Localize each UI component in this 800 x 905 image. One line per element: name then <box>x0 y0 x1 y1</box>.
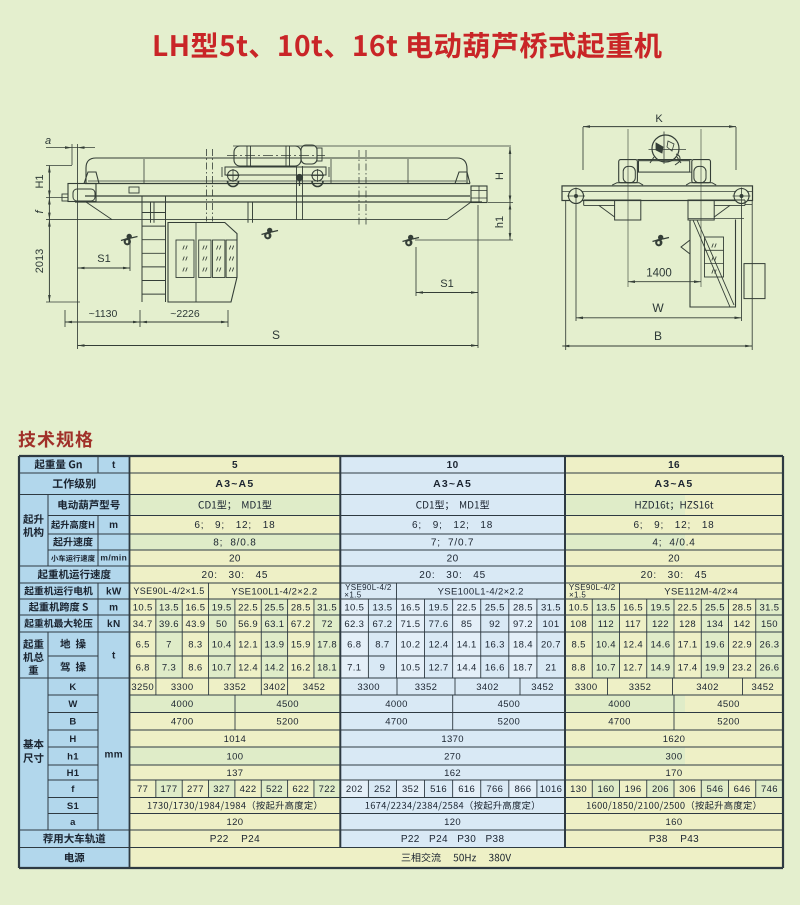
svg-text:13.9: 13.9 <box>264 639 284 650</box>
svg-text:101: 101 <box>543 619 560 630</box>
svg-text:1620: 1620 <box>663 734 686 745</box>
svg-text:t: t <box>112 651 116 662</box>
svg-text:3352: 3352 <box>629 682 652 693</box>
svg-text:20.7: 20.7 <box>541 639 561 650</box>
svg-text:67.2: 67.2 <box>372 619 392 630</box>
svg-text:W: W <box>68 699 77 710</box>
svg-text:12.4: 12.4 <box>238 662 258 673</box>
svg-text:15.9: 15.9 <box>291 639 311 650</box>
svg-text:77: 77 <box>137 784 148 795</box>
svg-text:3402: 3402 <box>696 682 719 693</box>
svg-text:12.4: 12.4 <box>623 639 643 650</box>
svg-text:26.6: 26.6 <box>759 662 779 673</box>
svg-text:766: 766 <box>486 784 503 795</box>
svg-text:3300: 3300 <box>357 682 380 693</box>
svg-text:20: 20 <box>229 554 241 565</box>
svg-text:14.9: 14.9 <box>650 662 670 673</box>
svg-text:31.5: 31.5 <box>759 602 779 613</box>
svg-text:8.6: 8.6 <box>188 662 202 673</box>
svg-text:196: 196 <box>625 784 642 795</box>
svg-text:19.9: 19.9 <box>705 662 725 673</box>
svg-text:277: 277 <box>187 784 204 795</box>
svg-text:A3~A5: A3~A5 <box>433 478 472 490</box>
svg-text:6; 9; 12; 18: 6; 9; 12; 18 <box>633 520 714 531</box>
svg-text:3452: 3452 <box>752 682 775 693</box>
svg-text:306: 306 <box>679 784 696 795</box>
svg-text:100: 100 <box>226 751 243 762</box>
svg-text:3452: 3452 <box>531 682 554 693</box>
svg-text:62.3: 62.3 <box>344 619 364 630</box>
svg-text:YSE112M-4/2×4: YSE112M-4/2×4 <box>664 586 738 597</box>
svg-text:516: 516 <box>430 784 447 795</box>
svg-text:10.7: 10.7 <box>212 662 232 673</box>
svg-text:kW: kW <box>106 587 122 598</box>
svg-text:f: f <box>71 784 75 795</box>
svg-text:4700: 4700 <box>171 717 194 728</box>
svg-text:B: B <box>69 717 76 728</box>
svg-text:142: 142 <box>734 619 751 630</box>
svg-text:5200: 5200 <box>276 717 299 728</box>
svg-text:616: 616 <box>458 784 475 795</box>
svg-text:23.2: 23.2 <box>732 662 752 673</box>
svg-text:14.2: 14.2 <box>264 662 284 673</box>
svg-text:67.2: 67.2 <box>291 619 311 630</box>
svg-text:4000: 4000 <box>608 699 631 710</box>
svg-text:10.4: 10.4 <box>596 639 616 650</box>
svg-text:646: 646 <box>734 784 751 795</box>
svg-text:10.4: 10.4 <box>212 639 232 650</box>
svg-text:72: 72 <box>321 619 332 630</box>
svg-text:8.5: 8.5 <box>571 639 585 650</box>
svg-text:17.4: 17.4 <box>678 662 698 673</box>
svg-text:YSE100L1-4/2×2.2: YSE100L1-4/2×2.2 <box>231 586 317 597</box>
svg-text:28.5: 28.5 <box>291 602 311 613</box>
svg-text:S1: S1 <box>67 801 80 812</box>
svg-text:3250: 3250 <box>131 682 154 693</box>
svg-text:a: a <box>45 135 51 147</box>
svg-text:546: 546 <box>706 784 723 795</box>
svg-text:20: 20 <box>447 554 459 565</box>
svg-text:1014: 1014 <box>224 734 247 745</box>
svg-text:4000: 4000 <box>385 699 408 710</box>
svg-text:5200: 5200 <box>717 717 740 728</box>
svg-text:3300: 3300 <box>171 682 194 693</box>
svg-text:6; 9; 12; 18: 6; 9; 12; 18 <box>194 520 275 531</box>
svg-text:3402: 3402 <box>263 682 286 693</box>
svg-text:18.1: 18.1 <box>317 662 337 673</box>
svg-text:6.5: 6.5 <box>136 639 150 650</box>
svg-text:h1: h1 <box>494 216 506 228</box>
svg-text:4500: 4500 <box>498 699 521 710</box>
svg-text:120: 120 <box>226 817 243 828</box>
svg-text:m: m <box>109 520 118 531</box>
svg-text:10: 10 <box>447 460 459 471</box>
svg-text:8; 8/0.8: 8; 8/0.8 <box>213 538 256 549</box>
svg-text:18.4: 18.4 <box>513 639 533 650</box>
svg-text:28.5: 28.5 <box>732 602 752 613</box>
svg-text:19.6: 19.6 <box>705 639 725 650</box>
svg-text:S1: S1 <box>440 278 453 290</box>
svg-text:422: 422 <box>240 784 257 795</box>
svg-text:4700: 4700 <box>608 717 631 728</box>
svg-text:H1: H1 <box>67 768 80 779</box>
svg-text:3352: 3352 <box>415 682 438 693</box>
svg-text:4000: 4000 <box>171 699 194 710</box>
svg-text:5200: 5200 <box>498 717 521 728</box>
svg-text:a: a <box>70 817 76 828</box>
svg-text:4500: 4500 <box>717 699 740 710</box>
svg-text:19.5: 19.5 <box>429 602 449 613</box>
svg-text:14.4: 14.4 <box>457 662 477 673</box>
svg-text:16.3: 16.3 <box>485 639 505 650</box>
svg-text:622: 622 <box>292 784 309 795</box>
svg-text:34.7: 34.7 <box>133 619 153 630</box>
svg-text:YSE90L-4/2×1.5: YSE90L-4/2×1.5 <box>133 586 204 596</box>
svg-text:122: 122 <box>652 619 669 630</box>
svg-text:327: 327 <box>213 784 230 795</box>
svg-text:77.6: 77.6 <box>429 619 449 630</box>
svg-text:28.5: 28.5 <box>513 602 533 613</box>
svg-text:K: K <box>69 682 76 693</box>
svg-text:×1.5: ×1.5 <box>344 590 361 599</box>
svg-text:4500: 4500 <box>276 699 299 710</box>
svg-text:YSE100L1-4/2×2.2: YSE100L1-4/2×2.2 <box>438 586 524 597</box>
svg-text:8.3: 8.3 <box>188 639 202 650</box>
svg-text:A3~A5: A3~A5 <box>655 478 694 490</box>
svg-text:160: 160 <box>597 784 614 795</box>
svg-text:63.1: 63.1 <box>264 619 284 630</box>
svg-text:7.3: 7.3 <box>162 662 176 673</box>
svg-text:16: 16 <box>668 460 680 471</box>
svg-text:P38 P43: P38 P43 <box>649 834 699 845</box>
svg-text:134: 134 <box>706 619 723 630</box>
svg-text:22.5: 22.5 <box>457 602 477 613</box>
svg-text:117: 117 <box>625 619 641 630</box>
svg-text:P22 P24 P30 P38: P22 P24 P30 P38 <box>401 834 505 845</box>
svg-text:16.5: 16.5 <box>401 602 421 613</box>
svg-text:P22 P24: P22 P24 <box>210 834 260 845</box>
svg-text:43.9: 43.9 <box>185 619 205 630</box>
svg-text:108: 108 <box>570 619 587 630</box>
svg-text:1400: 1400 <box>646 268 672 280</box>
svg-text:17.1: 17.1 <box>678 639 698 650</box>
svg-text:3452: 3452 <box>303 682 326 693</box>
svg-text:71.5: 71.5 <box>401 619 421 630</box>
svg-text:866: 866 <box>514 784 531 795</box>
svg-text:m: m <box>109 603 118 614</box>
svg-text:150: 150 <box>761 619 778 630</box>
svg-text:6; 9; 12; 18: 6; 9; 12; 18 <box>412 520 493 531</box>
svg-text:85: 85 <box>461 619 472 630</box>
svg-text:12.7: 12.7 <box>623 662 643 673</box>
svg-text:112: 112 <box>598 619 614 630</box>
svg-text:20: 20 <box>668 554 680 565</box>
svg-text:162: 162 <box>444 768 461 779</box>
svg-text:3300: 3300 <box>575 682 598 693</box>
svg-text:10.5: 10.5 <box>569 602 589 613</box>
svg-text:7.1: 7.1 <box>347 662 361 673</box>
svg-text:17.8: 17.8 <box>317 639 337 650</box>
svg-text:kN: kN <box>107 619 120 630</box>
svg-text:120: 120 <box>444 817 461 828</box>
svg-text:16.6: 16.6 <box>485 662 505 673</box>
svg-text:m/min: m/min <box>100 553 127 563</box>
svg-text:3352: 3352 <box>224 682 247 693</box>
svg-text:10.5: 10.5 <box>401 662 421 673</box>
svg-text:13.5: 13.5 <box>159 602 179 613</box>
svg-text:8.7: 8.7 <box>375 639 389 650</box>
svg-text:746: 746 <box>761 784 778 795</box>
svg-text:300: 300 <box>666 751 683 762</box>
svg-text:177: 177 <box>161 784 178 795</box>
svg-text:10.5: 10.5 <box>344 602 364 613</box>
svg-text:2013: 2013 <box>34 249 46 273</box>
svg-text:26.3: 26.3 <box>759 639 779 650</box>
svg-text:13.5: 13.5 <box>596 602 616 613</box>
svg-text:10.5: 10.5 <box>133 602 153 613</box>
svg-text:31.5: 31.5 <box>317 602 337 613</box>
svg-text:202: 202 <box>346 784 363 795</box>
svg-text:50: 50 <box>216 619 227 630</box>
svg-text:H1: H1 <box>34 174 46 188</box>
svg-text:4; 4/0.4: 4; 4/0.4 <box>652 538 695 549</box>
svg-text:16.5: 16.5 <box>185 602 205 613</box>
svg-text:B: B <box>654 329 662 343</box>
svg-text:16.5: 16.5 <box>623 602 643 613</box>
svg-text:mm: mm <box>105 750 123 761</box>
svg-text:352: 352 <box>402 784 419 795</box>
svg-text:~1130: ~1130 <box>89 308 118 320</box>
svg-text:270: 270 <box>444 751 461 762</box>
svg-text:130: 130 <box>570 784 587 795</box>
svg-text:20: 30: 45: 20: 30: 45 <box>419 570 486 581</box>
svg-text:206: 206 <box>652 784 669 795</box>
svg-text:56.9: 56.9 <box>238 619 258 630</box>
svg-text:22.5: 22.5 <box>238 602 258 613</box>
svg-text:S1: S1 <box>97 253 110 265</box>
svg-text:128: 128 <box>679 619 696 630</box>
svg-text:160: 160 <box>666 817 683 828</box>
svg-text:7: 7 <box>166 639 172 650</box>
svg-text:12.7: 12.7 <box>429 662 449 673</box>
svg-text:K: K <box>655 113 663 125</box>
svg-text:10.7: 10.7 <box>596 662 616 673</box>
svg-text:8.8: 8.8 <box>571 662 585 673</box>
svg-text:W: W <box>652 301 664 315</box>
svg-text:1016: 1016 <box>540 784 563 795</box>
svg-text:t: t <box>112 460 116 471</box>
svg-text:25.5: 25.5 <box>705 602 725 613</box>
svg-text:5: 5 <box>232 460 238 471</box>
svg-text:7; 7/0.7: 7; 7/0.7 <box>431 538 474 549</box>
svg-text:12.1: 12.1 <box>238 639 258 650</box>
svg-text:16.2: 16.2 <box>291 662 311 673</box>
svg-text:722: 722 <box>319 784 336 795</box>
svg-text:6.8: 6.8 <box>136 662 150 673</box>
svg-text:137: 137 <box>226 768 243 779</box>
svg-text:6.8: 6.8 <box>347 639 361 650</box>
svg-text:H: H <box>494 172 506 180</box>
svg-text:3402: 3402 <box>476 682 499 693</box>
svg-text:13.5: 13.5 <box>372 602 392 613</box>
svg-text:252: 252 <box>374 784 391 795</box>
svg-text:14.6: 14.6 <box>650 639 670 650</box>
svg-text:18.7: 18.7 <box>513 662 533 673</box>
svg-text:h1: h1 <box>67 751 79 762</box>
svg-text:20: 30: 45: 20: 30: 45 <box>202 570 269 581</box>
svg-text:92: 92 <box>489 619 500 630</box>
svg-text:21: 21 <box>545 662 556 673</box>
svg-text:170: 170 <box>666 768 683 779</box>
svg-text:~2226: ~2226 <box>170 308 200 320</box>
svg-text:25.5: 25.5 <box>264 602 284 613</box>
svg-text:A3~A5: A3~A5 <box>215 478 254 490</box>
svg-text:4700: 4700 <box>385 717 408 728</box>
svg-text:S: S <box>272 328 280 342</box>
svg-text:22.9: 22.9 <box>732 639 752 650</box>
svg-text:522: 522 <box>266 784 283 795</box>
svg-text:31.5: 31.5 <box>541 602 561 613</box>
svg-text:14.1: 14.1 <box>457 639 477 650</box>
svg-text:39.6: 39.6 <box>159 619 179 630</box>
svg-text:12.4: 12.4 <box>429 639 449 650</box>
svg-text:25.5: 25.5 <box>485 602 505 613</box>
svg-text:19.5: 19.5 <box>650 602 670 613</box>
svg-text:1370: 1370 <box>441 734 464 745</box>
svg-text:20: 30: 45: 20: 30: 45 <box>641 570 708 581</box>
svg-text:19.5: 19.5 <box>212 602 232 613</box>
svg-text:9: 9 <box>380 662 386 673</box>
svg-text:×1.5: ×1.5 <box>569 590 586 599</box>
svg-text:H: H <box>69 734 76 745</box>
svg-text:22.5: 22.5 <box>678 602 698 613</box>
svg-text:10.2: 10.2 <box>401 639 421 650</box>
svg-text:97.2: 97.2 <box>513 619 533 630</box>
